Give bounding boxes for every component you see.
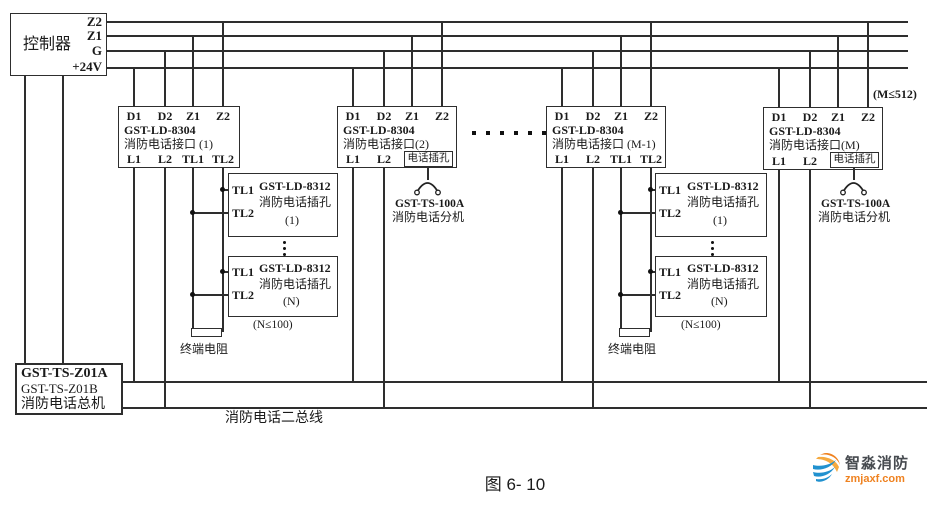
jack-model: GST-LD-8312 [687,262,759,275]
bus2-line-lower [123,407,927,409]
logo-site: zmjaxf.com [845,473,909,485]
logo-title: 智淼消防 [845,452,909,473]
terminal-label: L2 [582,152,604,167]
phone-jack-port-label: 电话插孔 [834,154,876,165]
terminal-label: TL1 [659,266,681,279]
phone-jack-port-label: 电话插孔 [408,153,450,164]
ellipsis-dot [514,131,518,135]
terminal-label: D2 [373,109,395,124]
terminal-label: D1 [123,109,145,124]
junction-dot [648,187,653,192]
telephone-handset-icon [413,179,442,196]
jack-model: GST-LD-8312 [259,262,331,275]
terminal-label: Z1 [401,109,423,124]
wire-b1-z2 [222,21,224,106]
ellipsis-dot [472,131,476,135]
watermark-logo: 智淼消防 zmjaxf.com [810,452,909,485]
controller-box: 控制器 Z2 Z1 G +24V [10,13,107,76]
interface-model: GST-LD-8304 [343,124,415,137]
interface-name: 消防电话接口(M) [769,139,860,152]
terminal-label: TL1 [182,152,204,167]
jack-index: (N) [711,295,728,308]
terminal-label: TL2 [640,152,662,167]
controller-label: 控制器 [23,36,71,54]
wire-b1-l1 [133,168,135,382]
terminal-resistor [619,328,650,337]
terminal-label: D1 [342,109,364,124]
jack-model: GST-LD-8312 [687,180,759,193]
wire-b4-z1 [837,35,839,107]
jack-index: (1) [713,214,727,227]
wire-b3-z1 [620,35,622,106]
terminal-label: TL1 [232,266,254,279]
terminal-label: D2 [154,109,176,124]
wire-b3-z2 [650,21,652,106]
jack-module-1-right: TL1 TL2 GST-LD-8312 消防电话插孔 (1) [655,173,767,237]
terminal-label: Z1 [827,110,849,125]
vertical-ellipsis [283,247,286,250]
jack-name: 消防电话插孔 [259,196,331,209]
terminal-label: TL2 [659,289,681,302]
wire-b4-l1 [778,170,780,382]
wire-b4-z2 [867,21,869,107]
vertical-ellipsis [283,241,286,244]
terminal-resistor [191,328,222,337]
master-name: 消防电话总机 [21,397,105,412]
wire-b1-tl1 [192,168,194,332]
controller-terminal-g: G [92,43,102,59]
interface-box-m: D1 D2 Z1 Z2 GST-LD-8304 消防电话接口(M) L1 L2 … [763,107,883,170]
wire-jack-stub [192,294,229,296]
jack-model: GST-LD-8312 [259,180,331,193]
terminal-label: Z1 [182,109,204,124]
controller-terminal-z1: Z1 [87,28,102,44]
terminal-label: TL2 [232,289,254,302]
extension-name: 消防电话分机 [818,211,890,224]
extension-model: GST-TS-100A [821,198,887,211]
bus2-label: 消防电话二总线 [225,411,323,426]
wire-jack-stub [620,212,656,214]
phone-jack-port: 电话插孔 [830,152,879,168]
terminal-label: Z2 [857,110,879,125]
terminal-label: D1 [551,109,573,124]
jack-module-n-left: TL1 TL2 GST-LD-8312 消防电话插孔 (N) [228,256,338,317]
wire-b3-l2 [592,168,594,408]
terminal-label: L1 [768,154,790,169]
extension-model: GST-TS-100A [395,198,461,211]
master-phone-box: GST-TS-Z01A GST-TS-Z01B 消防电话总机 [15,363,123,415]
terminal-label: D2 [799,110,821,125]
m-limit-annotation: (M≤512) [873,88,917,101]
wire-b2-z2 [441,21,443,106]
logo-icon [810,452,842,484]
interface-box-1: D1 D2 Z1 Z2 GST-LD-8304 消防电话接口 (1) L1 L2… [118,106,240,168]
interface-box-2: D1 D2 Z1 Z2 GST-LD-8304 消防电话接口(2) L1 L2 … [337,106,457,168]
jack-name: 消防电话插孔 [687,278,759,291]
jack-index: (N) [283,295,300,308]
wire-b3-l1 [561,168,563,382]
terminal-label: Z2 [431,109,453,124]
terminal-label: L1 [342,152,364,167]
wire-controller-drop-2 [62,76,64,363]
terminal-label: TL2 [212,152,234,167]
terminal-label: L2 [154,152,176,167]
wire-controller-drop-1 [24,76,26,363]
wire-b4-l2 [809,170,811,408]
terminal-label: Z1 [610,109,632,124]
vertical-ellipsis [711,247,714,250]
terminal-label: TL1 [232,184,254,197]
jack-index: (1) [285,214,299,227]
wire-b3-tl2 [650,168,652,332]
terminal-label: TL1 [659,184,681,197]
wire-jack-stub [620,294,656,296]
bus-line-z1 [107,35,908,37]
master-model-a: GST-TS-Z01A [21,366,108,381]
interface-model: GST-LD-8304 [552,124,624,137]
jack-name: 消防电话插孔 [687,196,759,209]
interface-model: GST-LD-8304 [769,125,841,138]
bus2-line-upper [123,381,927,383]
jack-module-1-left: TL1 TL2 GST-LD-8312 消防电话插孔 (1) [228,173,338,237]
wire-b2-jack [427,166,429,180]
bus-line-g [107,50,908,52]
bus-line-24v [107,67,908,69]
wiring-diagram-canvas: 控制器 Z2 Z1 G +24V (M≤512) D1 D2 Z1 Z2 GST… [0,0,949,510]
ellipsis-dot [486,131,490,135]
interface-model: GST-LD-8304 [124,124,196,137]
interface-name: 消防电话接口 (M-1) [552,138,656,151]
terminal-label: D2 [582,109,604,124]
wire-b1-l2 [164,168,166,408]
wire-jack-stub [192,212,229,214]
junction-dot [618,292,623,297]
ellipsis-dot [528,131,532,135]
figure-caption: 图 6- 10 [455,476,575,495]
bus-line-z2 [107,21,908,23]
terminal-resistor-label: 终端电阻 [608,343,656,356]
wire-b1-tl2 [222,168,224,332]
wire-b2-l1 [352,168,354,382]
terminal-label: TL1 [610,152,632,167]
wire-b2-d2 [383,50,385,106]
controller-terminal-24v: +24V [72,59,102,75]
phone-jack-port: 电话插孔 [404,151,453,167]
terminal-label: D1 [768,110,790,125]
wire-b4-d2 [809,50,811,107]
wire-b3-tl1 [620,168,622,332]
junction-dot [220,269,225,274]
terminal-label: L1 [551,152,573,167]
terminal-label: L1 [123,152,145,167]
interface-box-m1: D1 D2 Z1 Z2 GST-LD-8304 消防电话接口 (M-1) L1 … [546,106,666,168]
wire-b1-d1 [133,67,135,106]
interface-name: 消防电话接口(2) [343,138,429,151]
interface-name: 消防电话接口 (1) [124,138,213,151]
wire-b3-d2 [592,50,594,106]
terminal-label: L2 [799,154,821,169]
wire-b2-d1 [352,67,354,106]
extension-name: 消防电话分机 [392,211,464,224]
terminal-label: Z2 [640,109,662,124]
terminal-label: Z2 [212,109,234,124]
n-limit-annotation: (N≤100) [253,319,293,332]
terminal-label: TL2 [659,207,681,220]
junction-dot [220,187,225,192]
wire-b4-d1 [778,67,780,107]
vertical-ellipsis [711,241,714,244]
telephone-handset-icon [839,179,868,196]
wire-b2-l2 [383,168,385,408]
wire-b2-z1 [411,35,413,106]
wire-b3-d1 [561,67,563,106]
junction-dot [648,269,653,274]
terminal-resistor-label: 终端电阻 [180,343,228,356]
wire-b1-z1 [192,35,194,106]
wire-b1-d2 [164,50,166,106]
terminal-label: L2 [373,152,395,167]
ellipsis-dot [500,131,504,135]
junction-dot [190,210,195,215]
junction-dot [618,210,623,215]
jack-module-n-right: TL1 TL2 GST-LD-8312 消防电话插孔 (N) [655,256,767,317]
junction-dot [190,292,195,297]
jack-name: 消防电话插孔 [259,278,331,291]
n-limit-annotation: (N≤100) [681,319,721,332]
master-model-b: GST-TS-Z01B [21,382,98,396]
terminal-label: TL2 [232,207,254,220]
